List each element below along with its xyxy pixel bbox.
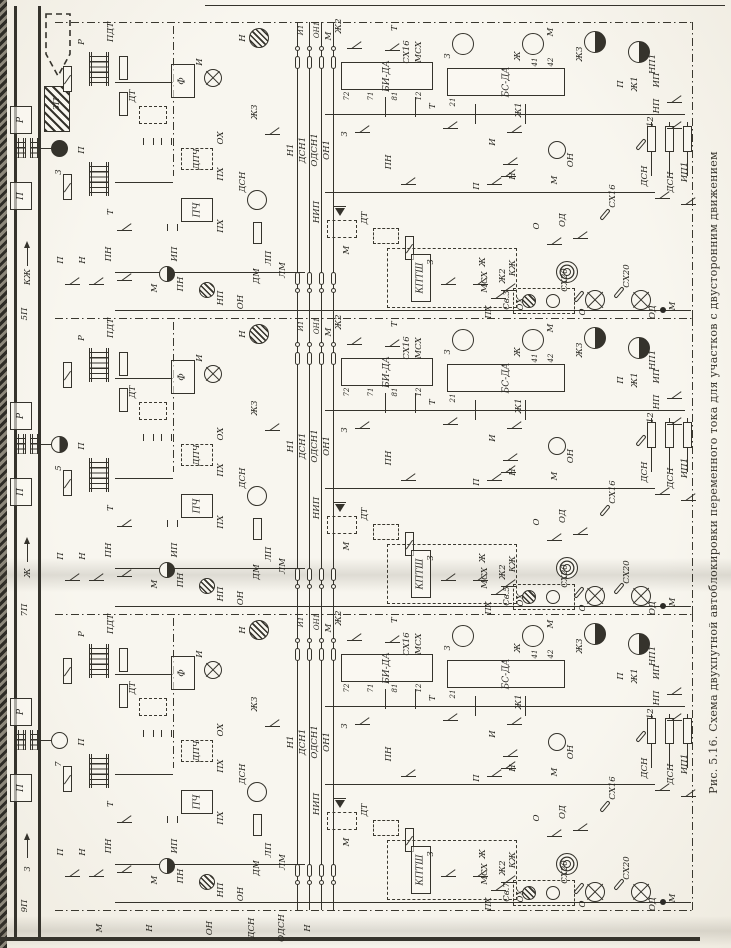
contact-zh2 <box>491 288 506 299</box>
label-sx20: СХ20 <box>622 856 632 879</box>
block-bi-da: БИ-ДА <box>341 358 433 386</box>
label-zh3: Ж3 <box>575 343 585 358</box>
label-p: П <box>77 442 87 449</box>
capacitor-icon <box>161 730 172 737</box>
fuse-link-icon <box>613 582 624 595</box>
signal-stem <box>38 148 52 149</box>
block-f: Ф <box>171 656 195 690</box>
label-sx20: СХ20 <box>560 860 570 883</box>
lamp-DSN <box>247 190 267 210</box>
label-p: П <box>616 672 626 679</box>
label-np: НП <box>652 99 662 114</box>
signal-number-label: 5 <box>54 465 64 470</box>
label-px: ПХ <box>216 759 226 772</box>
terminal-circle <box>307 584 312 589</box>
terminal-circle <box>307 342 312 347</box>
track-transformer-P <box>89 458 109 492</box>
signal-stem <box>38 740 52 741</box>
varistor-icon <box>63 470 72 496</box>
label-n: Н <box>508 468 518 475</box>
junction-dot-M <box>660 307 666 313</box>
label-t: Т <box>390 25 400 31</box>
label-m: М <box>668 894 678 903</box>
varistor-icon <box>63 174 72 200</box>
label-p: П <box>472 774 482 781</box>
label-zh2: Ж2 <box>334 19 344 34</box>
label-t: Т <box>428 103 438 109</box>
label-m: М <box>342 542 352 551</box>
label-m: М <box>668 598 678 607</box>
label-i: И <box>488 730 498 737</box>
label-sx20: СХ20 <box>622 560 632 583</box>
term-bi-71: 71 <box>367 684 375 693</box>
footer-bus-label-on: ОН <box>205 921 215 935</box>
label-ip: ИП <box>170 543 180 558</box>
label-z: З <box>443 53 453 58</box>
scan-seam <box>0 916 731 946</box>
wire <box>325 784 655 785</box>
scanned-schematic-figure: Рис. 5.16. Схема двухпутной автоблокиров… <box>0 0 731 948</box>
contact-z <box>441 570 456 581</box>
label-t: Т <box>428 399 438 405</box>
label-o: О <box>532 815 542 822</box>
indication-arrow-icon <box>27 836 28 858</box>
term-bs-21: 21 <box>449 394 457 403</box>
contact-t <box>117 220 132 231</box>
fuse-link-icon <box>599 208 610 221</box>
label-dsn: ДСН <box>238 764 248 785</box>
label-lm: ЛМ <box>278 854 288 870</box>
wire <box>115 378 173 379</box>
contact-pn <box>117 270 132 281</box>
label-m: М <box>546 324 556 333</box>
term-bi-71: 71 <box>367 92 375 101</box>
contact-od <box>573 820 588 831</box>
label-dpch: ДПЧ <box>192 741 202 762</box>
lamp-N <box>249 28 269 48</box>
label-n: Н <box>508 172 518 179</box>
label-np1: НП1 <box>648 350 658 370</box>
contact-t <box>443 710 458 721</box>
contact-z <box>355 418 370 429</box>
lamp-NP <box>199 874 215 890</box>
label-od: ОД <box>558 213 568 227</box>
label-dsn: ДСН <box>640 462 650 483</box>
terminal-circle <box>295 46 300 51</box>
label-px: ПХ <box>216 463 226 476</box>
contact-zh1 <box>507 714 522 725</box>
fuse-icon <box>331 272 336 285</box>
frame-top-line <box>205 5 725 6</box>
label-r: Р <box>77 631 87 637</box>
label-np1: НП1 <box>648 54 658 74</box>
fuse-icon <box>307 648 312 661</box>
label-on: ОН <box>236 295 246 309</box>
contact-t <box>117 812 132 823</box>
label-px: ПХ <box>484 601 494 614</box>
relay-NIP <box>327 812 357 830</box>
terminal-circle <box>307 288 312 293</box>
varistor-icon <box>63 362 72 388</box>
label-zh3: Ж3 <box>250 697 260 712</box>
term-bi-12: 12 <box>415 388 423 397</box>
label-m: М <box>546 620 556 629</box>
contact-np <box>667 118 682 129</box>
block-bs-da-label: БС-ДА <box>501 67 511 98</box>
lamp-ZH <box>522 33 544 55</box>
label-n: Н <box>508 764 518 771</box>
terminal-circle <box>331 342 336 347</box>
block-pch: ПЧ <box>181 494 213 518</box>
capacitor-icon <box>143 138 154 145</box>
label-i: И <box>488 434 498 441</box>
label-sx20: СХ20 <box>622 264 632 287</box>
block-bi-da-label: БИ-ДА <box>382 60 392 92</box>
label-p: П <box>56 256 66 263</box>
band-top-separator <box>55 22 695 23</box>
signal-head-lamp <box>522 294 536 308</box>
label-o: О <box>532 519 542 526</box>
fuse-link-icon <box>573 586 584 599</box>
label-dpch: ДПЧ <box>192 445 202 466</box>
label-i: И <box>195 354 205 361</box>
fuse-link-icon <box>635 138 646 151</box>
fuse-link-icon <box>635 730 646 743</box>
lamp-NP <box>199 282 215 298</box>
resistor-icon <box>665 422 674 448</box>
label-dsn1: ДСН1 <box>298 433 308 459</box>
label-zh: Ж <box>478 553 488 563</box>
block-f: Ф <box>171 360 195 394</box>
label-pn: ПН <box>104 247 114 262</box>
lamp-DSN <box>247 782 267 802</box>
label-dsn: ДСН <box>238 468 248 489</box>
block-f: Ф <box>171 64 195 98</box>
label-np: НП <box>216 291 226 306</box>
rail-bond-coil <box>16 434 26 454</box>
contact-ip <box>667 92 682 103</box>
lamp-NP1 <box>628 633 650 655</box>
track-signal-lamp <box>51 436 68 453</box>
wire <box>115 182 173 183</box>
label-z: З <box>426 259 436 264</box>
label-zh3: Ж3 <box>250 401 260 416</box>
terminal-circle <box>319 638 324 643</box>
wire <box>325 410 685 411</box>
label-pn: ПН <box>384 155 394 170</box>
label-ip: ИП <box>170 839 180 854</box>
block-bi-da-label: БИ-ДА <box>382 652 392 684</box>
term-bs-41: 41 <box>531 650 539 659</box>
label-pn: ПН <box>384 747 394 762</box>
label-dsn: ДСН <box>666 468 676 489</box>
label-m: М <box>342 246 352 255</box>
track-indication-label: КЖ <box>23 269 33 285</box>
block-pch: ПЧ <box>181 790 213 814</box>
term-bs-42: 42 <box>547 354 555 363</box>
label-pn: ПН <box>104 543 114 558</box>
signal-stem <box>38 444 52 445</box>
band-right-separator <box>692 22 693 318</box>
varistor-icon <box>63 66 72 92</box>
label-o: О <box>532 223 542 230</box>
label-z: З <box>426 555 436 560</box>
resistor-icon <box>119 388 128 412</box>
label-p: П <box>56 848 66 855</box>
resistor-icon <box>647 126 656 152</box>
label-np: НП <box>216 587 226 602</box>
lamp-O <box>585 290 605 310</box>
label-n: Н <box>238 626 248 633</box>
label-m: М <box>150 580 160 589</box>
label-dt: ДТ <box>128 682 138 695</box>
choke-DT <box>139 402 167 420</box>
junction-dot-M <box>660 603 666 609</box>
block-bs-da-label: БС-ДА <box>501 659 511 690</box>
term-bs-42: 42 <box>547 650 555 659</box>
contact-pn <box>401 470 416 481</box>
contact-i <box>503 450 518 461</box>
term-bi-81: 81 <box>391 92 399 101</box>
label-m: М <box>150 876 160 885</box>
block-bi-da-label: БИ-ДА <box>382 356 392 388</box>
label-p: П <box>77 738 87 745</box>
indication-arrow-icon <box>27 540 28 562</box>
label-ox: ОХ <box>216 427 226 440</box>
label-zh1: Ж1 <box>514 103 524 118</box>
label-zh2: Ж2 <box>334 315 344 330</box>
label-zh: Ж <box>513 51 523 61</box>
block-bs-da-label: БС-ДА <box>501 363 511 394</box>
term-bi-72: 72 <box>343 388 351 397</box>
fuse-icon <box>331 56 336 69</box>
footer-bus-label-n: Н <box>145 924 155 931</box>
label-nip: НИП <box>312 793 322 815</box>
section-label-5p: 5П <box>20 308 30 321</box>
fuse-link-icon <box>599 504 610 517</box>
capacitor-icon <box>143 730 154 737</box>
contact-ip <box>667 684 682 695</box>
label-i: И <box>195 58 205 65</box>
label-p: П <box>472 182 482 189</box>
label-dm: ДМ <box>252 860 262 876</box>
track-signal-lamp <box>51 140 68 157</box>
resistor-icon <box>683 126 692 152</box>
signal-number-label: 7 <box>54 761 64 766</box>
label-on1: ОН1 <box>313 318 321 334</box>
band-right-separator <box>692 614 693 910</box>
contact-n <box>89 866 104 877</box>
track-box-p: П <box>10 478 32 506</box>
fuse-link-icon <box>613 286 624 299</box>
resistor-icon <box>683 718 692 744</box>
terminal-circle <box>319 880 324 885</box>
wire <box>525 696 526 716</box>
label-dm: ДМ <box>252 268 262 284</box>
block-f-label: Ф <box>178 77 188 84</box>
label-zh2: Ж2 <box>334 611 344 626</box>
label-lm: ЛМ <box>278 262 288 278</box>
label-dpch: ДПЧ <box>192 149 202 170</box>
wire <box>325 114 685 115</box>
label-m: М <box>550 768 560 777</box>
label-dt: ДТ <box>128 90 138 103</box>
label-m: М <box>324 624 334 633</box>
fuse-icon <box>295 56 300 69</box>
label-ip: ИП <box>652 665 662 680</box>
contact-od <box>573 524 588 535</box>
label-n1: Н1 <box>286 736 296 749</box>
lamp-ZH <box>522 329 544 351</box>
label-t: Т <box>390 617 400 623</box>
lamp-N <box>249 620 269 640</box>
label-m: М <box>550 176 560 185</box>
label-px: ПХ <box>216 167 226 180</box>
left-cluster-separator <box>173 26 174 176</box>
label-pdt: ПДТ <box>106 22 116 42</box>
block-f-label: Ф <box>178 373 188 380</box>
resistor-icon <box>683 422 692 448</box>
term-bs-21: 21 <box>449 690 457 699</box>
term-bi-71: 71 <box>367 388 375 397</box>
label-n: Н <box>78 848 88 855</box>
terminal-circle <box>319 288 324 293</box>
block-pch-label: ПЧ <box>192 499 202 514</box>
fuse-icon <box>331 352 336 365</box>
lamp-ON <box>548 141 566 159</box>
diode-icon <box>335 208 345 216</box>
fuse-icon <box>295 864 300 877</box>
contact-zh3 <box>265 716 280 727</box>
contact-zh1 <box>507 418 522 429</box>
fuse-icon <box>319 568 324 581</box>
varistor-icon <box>63 658 72 684</box>
label-msx: МСХ <box>480 863 490 884</box>
label-on1: ОН1 <box>313 22 321 38</box>
fuse-icon <box>307 272 312 285</box>
label-px: ПХ <box>216 219 226 232</box>
terminal-circle <box>319 342 324 347</box>
label-msx: МСХ <box>414 337 424 358</box>
capacitor-icon <box>161 434 172 441</box>
label-t: Т <box>106 801 116 807</box>
track-box-p-label: П <box>16 784 26 792</box>
track-box-r-label: Р <box>16 413 26 419</box>
contact-dsn <box>681 194 696 205</box>
contact-n <box>89 570 104 581</box>
label-zh1: Ж1 <box>630 77 640 92</box>
label-sx16: СХ16 <box>402 632 412 655</box>
label-zh: Ж <box>478 257 488 267</box>
label-sx16: СХ16 <box>608 776 618 799</box>
contact-z <box>441 274 456 285</box>
label-t: Т <box>106 209 116 215</box>
block-pch: ПЧ <box>181 198 213 222</box>
label-r: Р <box>77 335 87 341</box>
figure-caption-text: Рис. 5.16. Схема двухпутной автоблокиров… <box>707 151 720 794</box>
contact-t <box>117 516 132 527</box>
label-o: О <box>578 605 588 612</box>
contact-i <box>503 154 518 165</box>
fuse-icon <box>331 864 336 877</box>
wire <box>325 192 655 193</box>
lamp-Z <box>452 33 474 55</box>
lamp-Z <box>452 329 474 351</box>
wire <box>115 272 305 273</box>
section-label-9p: 9П <box>20 900 30 913</box>
block-bi-da: БИ-ДА <box>341 654 433 682</box>
contact-t <box>443 414 458 425</box>
fuse-icon <box>319 272 324 285</box>
label-pn: ПН <box>176 573 186 588</box>
capacitor-icon <box>167 520 178 527</box>
label-zh2: Ж2 <box>498 269 508 284</box>
diode-icon <box>335 504 345 512</box>
label-p: П <box>472 478 482 485</box>
resistor-icon <box>253 222 262 244</box>
term-bi-81: 81 <box>391 684 399 693</box>
label-px: ПХ <box>484 305 494 318</box>
wire <box>475 696 476 716</box>
lamp-NP1 <box>628 337 650 359</box>
terminal-circle <box>331 584 336 589</box>
contact-p <box>65 866 80 877</box>
label-pn: ПН <box>176 869 186 884</box>
lamp-PN <box>159 266 175 282</box>
wire <box>475 104 476 124</box>
label-ip1: ИП1 <box>680 458 690 478</box>
label-p: П <box>616 376 626 383</box>
label-ip1: ИП1 <box>680 162 690 182</box>
label-zh1: Ж1 <box>630 373 640 388</box>
label-dsn1: ДСН1 <box>298 729 308 755</box>
label-ip: ИП <box>652 369 662 384</box>
fuse-link-icon <box>573 290 584 303</box>
signal-head-lamp <box>546 590 560 604</box>
label-zh1: Ж1 <box>514 399 524 414</box>
terminal-circle <box>307 880 312 885</box>
label-t: Т <box>428 695 438 701</box>
footer-bus-label-odsn: ОДСН <box>277 914 287 942</box>
label-on: ОН <box>566 153 576 167</box>
resistor-icon <box>665 718 674 744</box>
wire <box>385 393 386 413</box>
contact-zh3 <box>265 124 280 135</box>
contact-t <box>443 118 458 129</box>
relay-NIP <box>327 516 357 534</box>
contact-zh3 <box>265 420 280 431</box>
lamp-ZH3 <box>584 327 606 349</box>
band-right-separator <box>692 318 693 614</box>
label-dt: ДТ <box>360 212 370 225</box>
wire <box>115 478 173 479</box>
label-zh2: Ж2 <box>498 565 508 580</box>
resistor-icon <box>119 684 128 708</box>
wire <box>115 310 691 311</box>
track-signal-lamp <box>51 732 68 749</box>
section-label-7p: 7П <box>20 604 30 617</box>
label-np: НП <box>652 691 662 706</box>
track-box-r: Р <box>10 106 32 134</box>
track-transformer-P <box>89 162 109 196</box>
terminal-circle <box>295 288 300 293</box>
label-on1: ОН1 <box>322 140 332 160</box>
capacitor-icon <box>143 434 154 441</box>
fuse-icon <box>307 56 312 69</box>
label-zh: Ж <box>513 347 523 357</box>
terminal-circle <box>295 880 300 885</box>
signal-head-lamp <box>546 294 560 308</box>
